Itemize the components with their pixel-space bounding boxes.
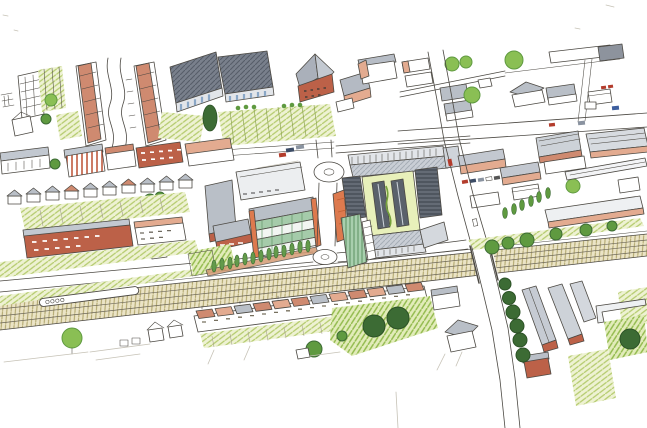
car bbox=[549, 123, 555, 127]
tree bbox=[445, 57, 459, 71]
cottage bbox=[12, 116, 33, 136]
outline-house bbox=[168, 325, 183, 338]
unit bbox=[618, 177, 640, 193]
roundabout-north bbox=[314, 162, 344, 182]
east-louver-wing bbox=[415, 167, 442, 218]
mature-tree bbox=[387, 307, 409, 329]
shed-east bbox=[218, 51, 273, 94]
car bbox=[612, 106, 619, 111]
lawn-patch bbox=[56, 111, 82, 140]
lawn bbox=[568, 349, 616, 406]
roundabout-south bbox=[313, 250, 337, 265]
tree bbox=[62, 328, 82, 348]
tree bbox=[337, 331, 347, 341]
terrace-wall bbox=[106, 150, 136, 170]
hut bbox=[478, 78, 492, 88]
aerial-sketch bbox=[0, 0, 647, 428]
van bbox=[585, 102, 596, 109]
tree bbox=[505, 51, 523, 69]
tree bbox=[460, 56, 472, 68]
tree bbox=[45, 94, 57, 106]
brick-house bbox=[524, 358, 551, 378]
tree bbox=[464, 87, 480, 103]
car bbox=[578, 121, 585, 126]
hut bbox=[296, 348, 310, 359]
gray-block bbox=[598, 44, 624, 61]
illustration-canvas bbox=[0, 0, 647, 428]
tree bbox=[566, 179, 580, 193]
tree bbox=[41, 114, 51, 124]
mature-tree bbox=[620, 329, 640, 349]
mature-tree bbox=[363, 315, 385, 337]
outline-house bbox=[148, 328, 164, 342]
tall-tree bbox=[203, 105, 217, 131]
tree bbox=[50, 159, 60, 169]
lawn-patch bbox=[158, 112, 205, 142]
